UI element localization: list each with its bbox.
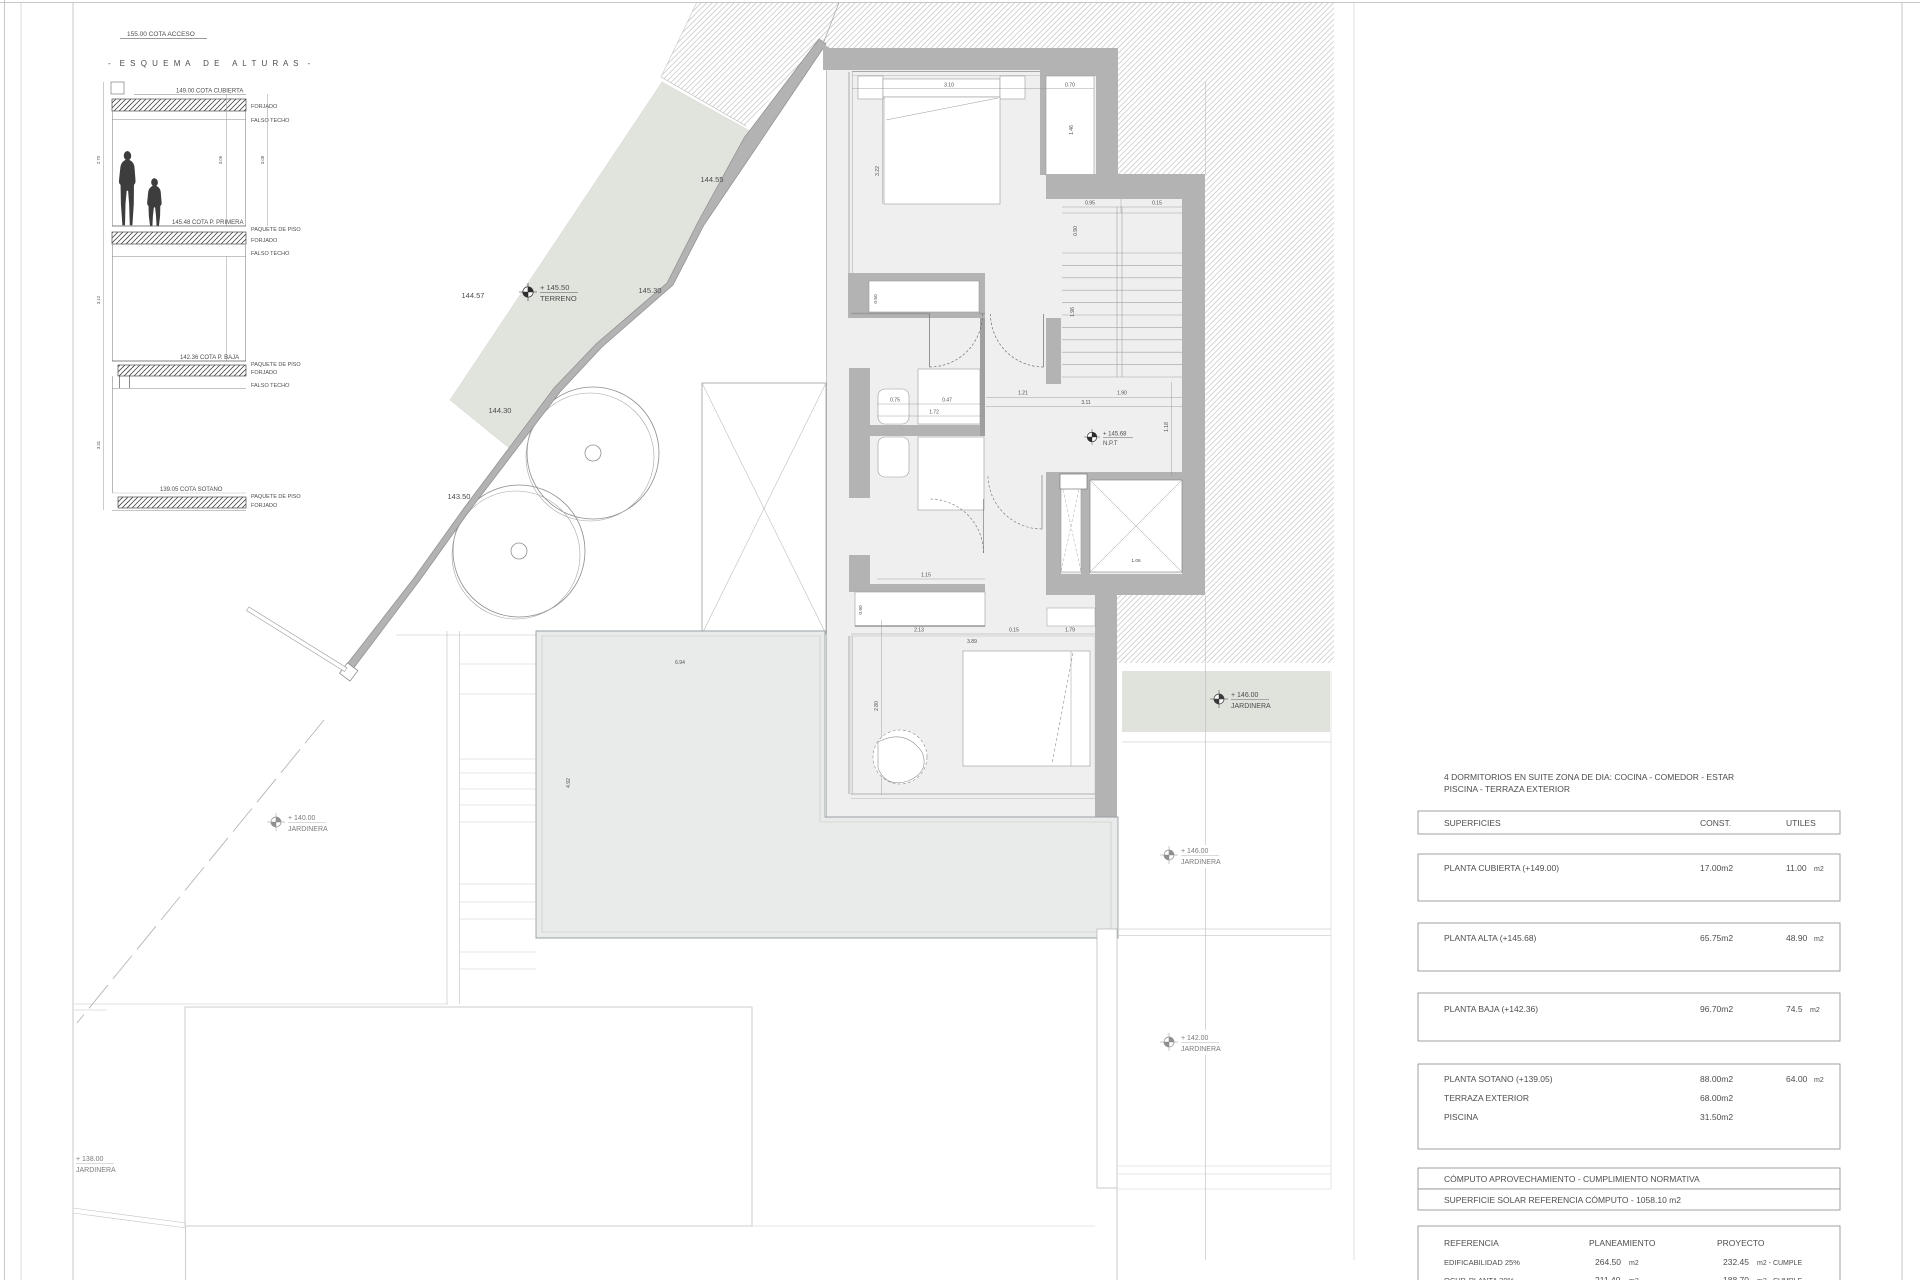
svg-text:31.50m2: 31.50m2: [1700, 1112, 1733, 1122]
svg-text:2.80: 2.80: [874, 701, 880, 711]
svg-text:JARDINERA: JARDINERA: [288, 826, 328, 833]
svg-text:+ 142.00: + 142.00: [1181, 1035, 1209, 1042]
svg-text:PAQUETE DE PISO: PAQUETE DE PISO: [251, 227, 301, 233]
svg-text:4 DORMITORIOS EN SUITE ZONA DE: 4 DORMITORIOS EN SUITE ZONA DE DIA: COCI…: [1444, 772, 1734, 782]
svg-text:64.00: 64.00: [1786, 1074, 1808, 1084]
svg-text:139.05 COTA SOTANO: 139.05 COTA SOTANO: [160, 487, 223, 493]
svg-text:CÓMPUTO APROVECHAMIENTO - CUMP: CÓMPUTO APROVECHAMIENTO - CUMPLIMIENTO N…: [1444, 1174, 1700, 1184]
svg-text:3.22: 3.22: [875, 166, 881, 176]
svg-text:145.48 COTA P. PRIMERA: 145.48 COTA P. PRIMERA: [172, 220, 243, 226]
svg-text:232.45: 232.45: [1723, 1257, 1749, 1267]
svg-text:JARDINERA: JARDINERA: [1181, 1046, 1221, 1053]
svg-text:188.70: 188.70: [1723, 1275, 1749, 1280]
svg-text:FORJADO: FORJADO: [251, 370, 278, 376]
svg-text:11.00: 11.00: [1786, 863, 1807, 873]
svg-text:PROYECTO: PROYECTO: [1717, 1238, 1765, 1248]
svg-text:144.55: 144.55: [701, 175, 724, 184]
svg-text:3.08: 3.08: [260, 155, 265, 164]
svg-text:88.00m2: 88.00m2: [1700, 1074, 1733, 1084]
svg-text:143.50: 143.50: [448, 492, 471, 501]
svg-text:JARDINERA: JARDINERA: [76, 1167, 116, 1174]
svg-text:68.00m2: 68.00m2: [1700, 1093, 1733, 1103]
svg-text:SUPERFICIE SOLAR REFERENCIA CÓ: SUPERFICIE SOLAR REFERENCIA CÓMPUTO - 10…: [1444, 1195, 1681, 1205]
svg-text:FORJADO: FORJADO: [251, 238, 278, 244]
svg-text:PISCINA - TERRAZA EXTERIOR: PISCINA - TERRAZA EXTERIOR: [1444, 784, 1570, 794]
svg-text:149.00 COTA CUBIERTA: 149.00 COTA CUBIERTA: [176, 89, 243, 95]
svg-text:144.30: 144.30: [489, 406, 512, 415]
svg-text:3.31: 3.31: [96, 440, 101, 449]
svg-text:3.06: 3.06: [218, 155, 223, 164]
svg-text:m2: m2: [1814, 936, 1824, 943]
svg-text:155.00 COTA ACCESO: 155.00 COTA ACCESO: [127, 31, 195, 38]
svg-text:17.00m2: 17.00m2: [1700, 863, 1733, 873]
svg-text:2.13: 2.13: [914, 628, 924, 634]
svg-text:PAQUETE DE PISO: PAQUETE DE PISO: [251, 494, 301, 500]
svg-text:0.47: 0.47: [942, 398, 952, 404]
svg-text:144.57: 144.57: [462, 291, 485, 300]
svg-text:48.90: 48.90: [1786, 933, 1808, 943]
svg-text:3.11: 3.11: [1081, 400, 1091, 406]
svg-text:m2: m2: [1810, 1007, 1820, 1014]
svg-text:4.92: 4.92: [566, 778, 572, 788]
svg-text:1.18: 1.18: [1164, 422, 1170, 432]
svg-text:PAQUETE DE PISO: PAQUETE DE PISO: [251, 362, 301, 368]
svg-text:0.15: 0.15: [1009, 628, 1019, 634]
svg-text:264.50: 264.50: [1595, 1257, 1621, 1267]
svg-text:142.36 COTA P. BAJA: 142.36 COTA P. BAJA: [180, 355, 239, 361]
svg-text:1.06: 1.06: [1131, 558, 1141, 564]
svg-text:0.15: 0.15: [1152, 201, 1162, 207]
svg-text:+ 138.00: + 138.00: [76, 1156, 104, 1163]
svg-text:1.72: 1.72: [929, 410, 939, 416]
svg-text:PLANTA SOTANO (+139.05): PLANTA SOTANO (+139.05): [1444, 1074, 1553, 1084]
svg-text:EDIFICABILIDAD 25%: EDIFICABILIDAD 25%: [1444, 1258, 1520, 1267]
svg-text:0.75: 0.75: [890, 398, 900, 404]
svg-text:PLANTA ALTA (+145.68): PLANTA ALTA (+145.68): [1444, 933, 1537, 943]
svg-text:PLANEAMIENTO: PLANEAMIENTO: [1589, 1238, 1656, 1248]
svg-text:FALSO TECHO: FALSO TECHO: [251, 118, 290, 124]
svg-text:145.30: 145.30: [639, 286, 662, 295]
svg-text:FALSO TECHO: FALSO TECHO: [251, 251, 290, 257]
svg-text:65.75m2: 65.75m2: [1700, 933, 1733, 943]
svg-text:REFERENCIA: REFERENCIA: [1444, 1238, 1499, 1248]
svg-text:3.12: 3.12: [96, 295, 101, 304]
svg-text:1.21: 1.21: [1018, 391, 1028, 397]
svg-text:1.90: 1.90: [1117, 391, 1127, 397]
svg-text:+ 146.00: + 146.00: [1181, 848, 1209, 855]
svg-text:0.70: 0.70: [1065, 83, 1075, 89]
svg-text:74.5: 74.5: [1786, 1004, 1803, 1014]
svg-text:0.90: 0.90: [858, 605, 864, 615]
svg-text:JARDINERA: JARDINERA: [1231, 703, 1271, 710]
svg-text:SUPERFICIES: SUPERFICIES: [1444, 818, 1501, 828]
svg-text:N.P.T: N.P.T: [1103, 441, 1118, 447]
svg-text:1.15: 1.15: [921, 573, 931, 579]
svg-text:0.50: 0.50: [873, 294, 879, 304]
svg-text:m2 - CUMPLE: m2 - CUMPLE: [1757, 1260, 1802, 1267]
svg-text:OCUP. PLANTA 30%: OCUP. PLANTA 30%: [1444, 1276, 1515, 1280]
svg-text:2.70: 2.70: [96, 155, 101, 164]
svg-text:TERRAZA EXTERIOR: TERRAZA EXTERIOR: [1444, 1093, 1529, 1103]
svg-text:FORJADO: FORJADO: [251, 503, 278, 509]
svg-text:96.70m2: 96.70m2: [1700, 1004, 1733, 1014]
svg-text:+ 145.68: + 145.68: [1103, 432, 1127, 438]
svg-text:PLANTA BAJA (+142.36): PLANTA BAJA (+142.36): [1444, 1004, 1538, 1014]
svg-text:+ 146.00: + 146.00: [1231, 692, 1259, 699]
svg-text:+ 140.00: + 140.00: [288, 815, 316, 822]
svg-text:m2: m2: [1814, 1077, 1824, 1084]
svg-text:+ 145.50: + 145.50: [540, 283, 569, 292]
svg-text:1.96: 1.96: [1070, 307, 1076, 317]
svg-text:PLANTA CUBIERTA (+149.00): PLANTA CUBIERTA (+149.00): [1444, 863, 1559, 873]
svg-text:1.46: 1.46: [1069, 125, 1075, 135]
svg-text:- E S Q U E M A D E A L T: - E S Q U E M A D E A L T U R A S -: [108, 59, 312, 68]
svg-text:FALSO TECHO: FALSO TECHO: [251, 383, 290, 389]
svg-text:CONST.: CONST.: [1700, 818, 1731, 828]
svg-text:m2: m2: [1629, 1260, 1639, 1267]
svg-text:PISCINA: PISCINA: [1444, 1112, 1478, 1122]
svg-text:FORJADO: FORJADO: [251, 104, 278, 110]
svg-text:JARDINERA: JARDINERA: [1181, 859, 1221, 866]
svg-text:UTILES: UTILES: [1786, 818, 1816, 828]
svg-text:0.90: 0.90: [1073, 226, 1079, 236]
svg-text:211.40: 211.40: [1595, 1275, 1621, 1280]
svg-text:3.10: 3.10: [944, 83, 954, 89]
svg-text:TERRENO: TERRENO: [540, 294, 577, 303]
svg-text:1.79: 1.79: [1065, 628, 1075, 634]
svg-text:m2: m2: [1814, 866, 1824, 873]
svg-text:0.95: 0.95: [1085, 201, 1095, 207]
svg-text:3.89: 3.89: [967, 639, 977, 645]
svg-text:6.94: 6.94: [675, 660, 685, 666]
